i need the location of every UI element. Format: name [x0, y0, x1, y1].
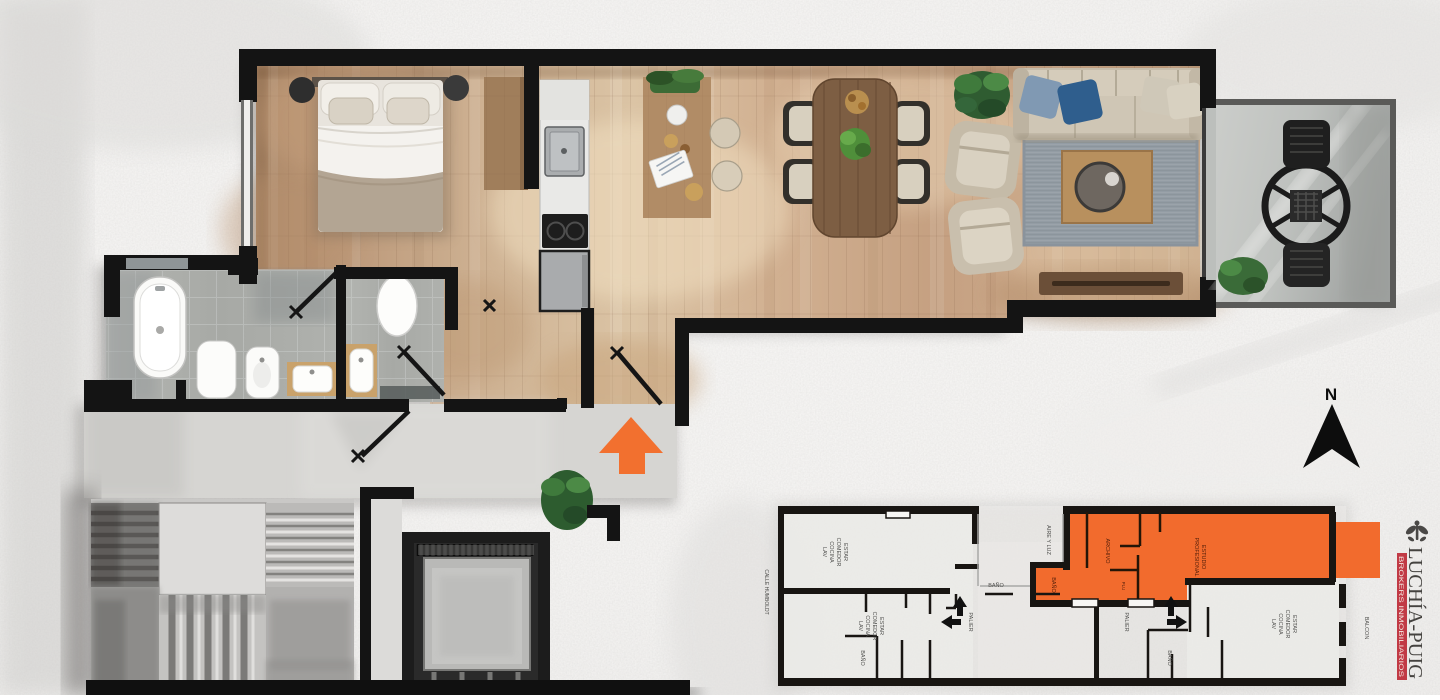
svg-text:CALLE HUMBOLDT: CALLE HUMBOLDT — [763, 569, 769, 614]
svg-text:BALCON: BALCON — [1363, 617, 1369, 640]
svg-text:BAÑO: BAÑO — [988, 582, 1004, 589]
svg-text:PALIER: PALIER — [1123, 612, 1129, 631]
svg-text:AIRE Y LUZ: AIRE Y LUZ — [1045, 525, 1051, 555]
svg-text:ARCHIVO: ARCHIVO — [1104, 538, 1110, 564]
svg-text:PALIER: PALIER — [967, 612, 973, 631]
svg-text:BAÑO: BAÑO — [859, 650, 866, 666]
svg-text:LUCHÍA-PUIG: LUCHÍA-PUIG — [1404, 547, 1427, 679]
svg-text:N: N — [1325, 385, 1337, 404]
svg-text:BAÑO: BAÑO — [1050, 577, 1057, 593]
svg-text:BROKERS INMOBILIARIOS: BROKERS INMOBILIARIOS — [1397, 556, 1403, 677]
svg-text:BAÑO: BAÑO — [1166, 650, 1173, 666]
svg-text:PLU: PLU — [1121, 582, 1126, 591]
